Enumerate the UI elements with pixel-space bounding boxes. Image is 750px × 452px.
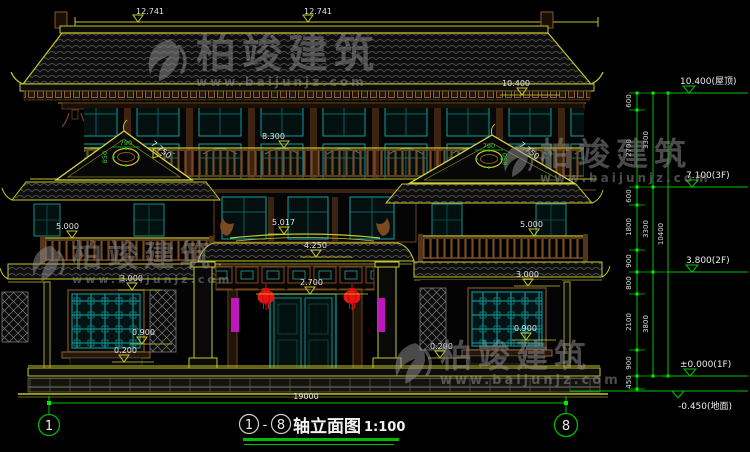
level-roof: 10.400(屋顶) — [680, 76, 737, 87]
cad-elevation-canvas: 12.741 12.741 10.400 8.300 — [0, 0, 750, 452]
svg-text:5.000: 5.000 — [56, 222, 79, 231]
dim-vent-w-right: 790 — [483, 142, 495, 150]
svg-text:1: 1 — [245, 418, 253, 433]
svg-text:3.000: 3.000 — [516, 270, 539, 279]
svg-text:800: 800 — [625, 276, 633, 289]
svg-text:600: 600 — [625, 189, 633, 202]
dim-ridge-left: 12.741 — [136, 7, 164, 16]
level-3f: 7.100(3F) — [686, 171, 730, 181]
svg-text:10.400: 10.400 — [502, 79, 530, 88]
dim-vent-h-right: 850 — [501, 153, 509, 165]
svg-text:3.000: 3.000 — [120, 274, 143, 283]
dim-vent-w-left: 790 — [120, 139, 132, 147]
roof-face — [23, 33, 591, 84]
drawing-scale: 1:100 — [364, 420, 405, 435]
main-roof — [11, 12, 603, 103]
svg-text:8.300: 8.300 — [262, 132, 285, 141]
svg-text:2100: 2100 — [625, 313, 633, 331]
svg-text:5.017: 5.017 — [272, 218, 295, 227]
svg-text:1: 1 — [45, 419, 53, 434]
entrance-pilaster-left — [194, 266, 212, 366]
svg-text:0.900: 0.900 — [132, 328, 155, 337]
gable-right-tile-band — [386, 184, 592, 203]
dim-ridge-right: 12.741 — [304, 7, 332, 16]
title-underline-thick — [243, 438, 399, 441]
svg-text:10400: 10400 — [657, 223, 665, 245]
drawing-title: 轴立面图 — [293, 416, 361, 437]
svg-text:2700: 2700 — [625, 139, 633, 157]
svg-text:0.200: 0.200 — [114, 346, 137, 355]
gable-left-vent — [113, 149, 139, 166]
dim-chain-right: 600 2700 600 1800 900 800 2100 900 450 3… — [625, 92, 676, 391]
dim-overall-width: 19000 — [293, 392, 318, 401]
svg-text:5.000: 5.000 — [520, 220, 543, 229]
svg-text:0.200: 0.200 — [430, 342, 453, 351]
lattice-panel-far-left — [2, 292, 28, 342]
couplet-left — [231, 298, 239, 332]
level-1f: ±0.000(1F) — [680, 360, 731, 370]
lattice-panel-right — [420, 288, 446, 350]
svg-text:2.700: 2.700 — [300, 278, 323, 287]
svg-text:900: 900 — [625, 254, 633, 267]
svg-text:600: 600 — [625, 94, 633, 107]
brick-course — [28, 378, 600, 392]
title-bar: 1 - 8 轴立面图 1:100 — [240, 415, 406, 445]
corner-column-right — [564, 282, 570, 368]
svg-text:8: 8 — [277, 418, 285, 433]
svg-text:8: 8 — [562, 419, 570, 434]
svg-text:3300: 3300 — [642, 131, 650, 149]
entrance-transom-fretwork — [216, 266, 374, 290]
svg-text:3800: 3800 — [642, 315, 650, 333]
svg-text:0.900: 0.900 — [514, 324, 537, 333]
svg-text:1800: 1800 — [625, 218, 633, 236]
couplet-right — [377, 298, 385, 332]
svg-text:-: - — [263, 418, 268, 433]
svg-text:900: 900 — [625, 356, 633, 369]
dim-vent-h-left: 850 — [101, 151, 109, 163]
svg-text:3300: 3300 — [642, 220, 650, 238]
gable-left-tile-band — [12, 182, 220, 200]
corner-column-left — [44, 282, 50, 368]
elevation-drawing: 12.741 12.741 10.400 8.300 — [0, 0, 750, 452]
level-ground: -0.450(地面) — [678, 400, 732, 412]
lattice-panel-left — [150, 290, 176, 352]
window-sill-right — [462, 350, 552, 356]
gable-right-vent — [476, 151, 502, 168]
top-dimension: 12.741 12.741 — [75, 7, 598, 27]
roof-ridge — [60, 26, 548, 33]
svg-text:4.250: 4.250 — [304, 241, 327, 250]
eave-tile-caps — [24, 91, 590, 100]
svg-text:450: 450 — [625, 375, 633, 388]
level-2f: 3.800(2F) — [686, 256, 730, 266]
